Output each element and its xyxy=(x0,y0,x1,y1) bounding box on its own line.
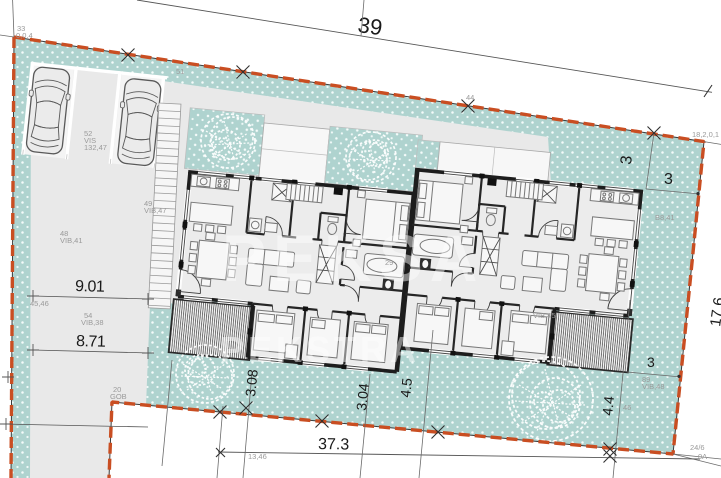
svg-text:13,46: 13,46 xyxy=(248,452,267,461)
svg-text:51: 51 xyxy=(176,67,184,76)
svg-text:46: 46 xyxy=(623,403,631,412)
svg-text:45,46: 45,46 xyxy=(30,299,49,308)
svg-text:18,2,0,1: 18,2,0,1 xyxy=(692,130,719,139)
svg-text:VIB,45: VIB,45 xyxy=(533,311,556,320)
svg-text:3: 3 xyxy=(664,171,673,188)
svg-text:0,0,4: 0,0,4 xyxy=(16,31,33,40)
svg-text:3: 3 xyxy=(618,155,636,166)
svg-text:44: 44 xyxy=(466,93,474,102)
svg-text:3.08: 3.08 xyxy=(242,368,261,397)
svg-text:8.71: 8.71 xyxy=(76,333,106,351)
svg-text:132,47: 132,47 xyxy=(84,143,107,152)
svg-text:GOB: GOB xyxy=(110,392,127,401)
svg-text:3.04: 3.04 xyxy=(353,382,372,411)
svg-text:VIB,47: VIB,47 xyxy=(144,206,167,215)
svg-text:VIB,38: VIB,38 xyxy=(81,318,104,327)
svg-text:VIB,41: VIB,41 xyxy=(60,236,83,245)
svg-text:PEKSTRA: PEKSTRA xyxy=(220,329,420,370)
svg-text:9.01: 9.01 xyxy=(75,278,105,296)
svg-text:37.3: 37.3 xyxy=(318,436,350,454)
svg-text:39: 39 xyxy=(356,12,384,40)
svg-text:0A: 0A xyxy=(698,452,707,461)
svg-text:B8,41: B8,41 xyxy=(655,213,675,222)
svg-text:24/6: 24/6 xyxy=(690,443,705,452)
svg-text:VIB,48: VIB,48 xyxy=(642,382,665,391)
svg-text:PEKSA: PEKSA xyxy=(222,221,484,295)
svg-text:4.4: 4.4 xyxy=(599,395,617,416)
svg-text:4.5: 4.5 xyxy=(397,377,415,398)
svg-text:3: 3 xyxy=(647,354,655,370)
